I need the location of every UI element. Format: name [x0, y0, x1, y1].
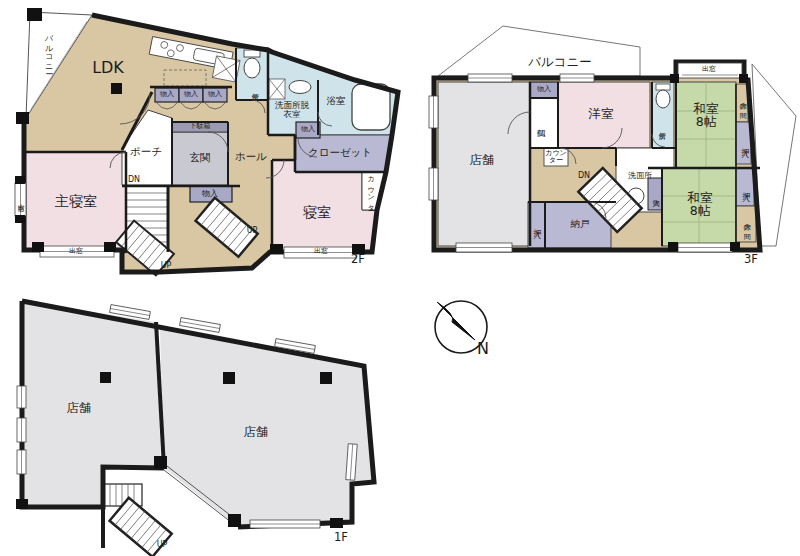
storage-label: 物入 — [301, 126, 315, 133]
floor-tag-1f: 1F — [334, 531, 348, 543]
bedroom-label: 寝室 — [303, 205, 331, 220]
oshiire-label: 押入 — [741, 186, 749, 188]
dn-3f-label: DN — [578, 172, 590, 180]
closet-label: クローゼット — [308, 147, 372, 158]
tokonoma-label: 床の間 — [738, 98, 745, 109]
oshiire-label: 押入 — [740, 142, 748, 144]
toilet-3f-label: 便所 — [657, 126, 664, 128]
tokonoma-label: 床の間 — [742, 219, 749, 230]
bay-window-label: 出窓 — [16, 198, 23, 200]
washroom-3f-label: 洗面所 — [628, 172, 652, 180]
floor-tag-3f: 3F — [744, 253, 758, 265]
toilet-fixture-3f — [656, 84, 670, 108]
japanese-room-size: 8帖 — [688, 204, 713, 217]
bay-window-label: 出窓 — [69, 248, 83, 255]
storeroom-label: 納戸 — [571, 219, 590, 229]
bath-tub — [352, 84, 390, 130]
storage-label: 物入 — [160, 91, 174, 98]
oshiire-label: 押入 — [532, 223, 540, 225]
up-1f-label: UP — [157, 541, 168, 549]
shop-label: 店舗 — [244, 425, 269, 438]
up-2f-label: UP — [161, 262, 172, 270]
balcony-2f-label: バルコニー — [44, 29, 52, 70]
bay-window-label: 出窓 — [702, 66, 716, 73]
washer-space — [269, 79, 285, 99]
altar-room-label: 仏間 — [536, 123, 544, 125]
north-label: N — [477, 341, 489, 358]
counter-2f-label: カウンター — [366, 172, 373, 209]
storage-label: 物入 — [537, 86, 551, 93]
western-room-label: 洋室 — [589, 107, 614, 120]
floorplan-graphics — [0, 0, 800, 556]
japanese-room-label: 和室8帖 — [694, 102, 719, 128]
hall-label: ホール — [235, 151, 267, 162]
floor-3f — [429, 26, 796, 252]
floorplan-canvas: バルコニー LDK 便所 洗面所脱衣室 浴室 物入 物入 物入 物入 物入 下駄… — [0, 0, 800, 556]
floor-1f — [16, 301, 374, 556]
toilet-2f-label: 便所 — [250, 87, 257, 89]
floor-tag-2f: 2F — [351, 253, 365, 265]
bath-label: 浴室 — [327, 96, 346, 106]
dn-2f-label: DN — [128, 176, 140, 184]
japanese-room-label: 和室8帖 — [688, 191, 713, 217]
entrance-label: 玄関 — [190, 152, 211, 163]
storage-label: 物入 — [651, 193, 658, 195]
toilet-fixture-2f — [244, 50, 260, 78]
shop-label: 店舗 — [67, 401, 92, 414]
storage-label: 物入 — [184, 91, 198, 98]
up-2f-label: UP — [247, 227, 258, 235]
ldk-label: LDK — [92, 60, 124, 77]
master-bedroom-label: 主寝室 — [55, 194, 97, 209]
washroom-2f-label: 洗面所脱衣室 — [275, 101, 309, 119]
floor-2f — [15, 8, 398, 275]
storage-label: 物入 — [202, 190, 218, 198]
bay-window-label: 出窓 — [314, 248, 328, 255]
counter-3f-label: カウンター — [545, 150, 567, 165]
japanese-room-size: 8帖 — [694, 115, 719, 128]
porch-label: ポーチ — [130, 146, 162, 157]
storage-label: 物入 — [208, 91, 222, 98]
shoe-cabinet-label: 下駄箱 — [190, 123, 211, 130]
balcony-3f-label: バルコニー — [528, 55, 592, 68]
shop-label: 店舗 — [470, 153, 495, 166]
basin-2f — [289, 81, 311, 94]
